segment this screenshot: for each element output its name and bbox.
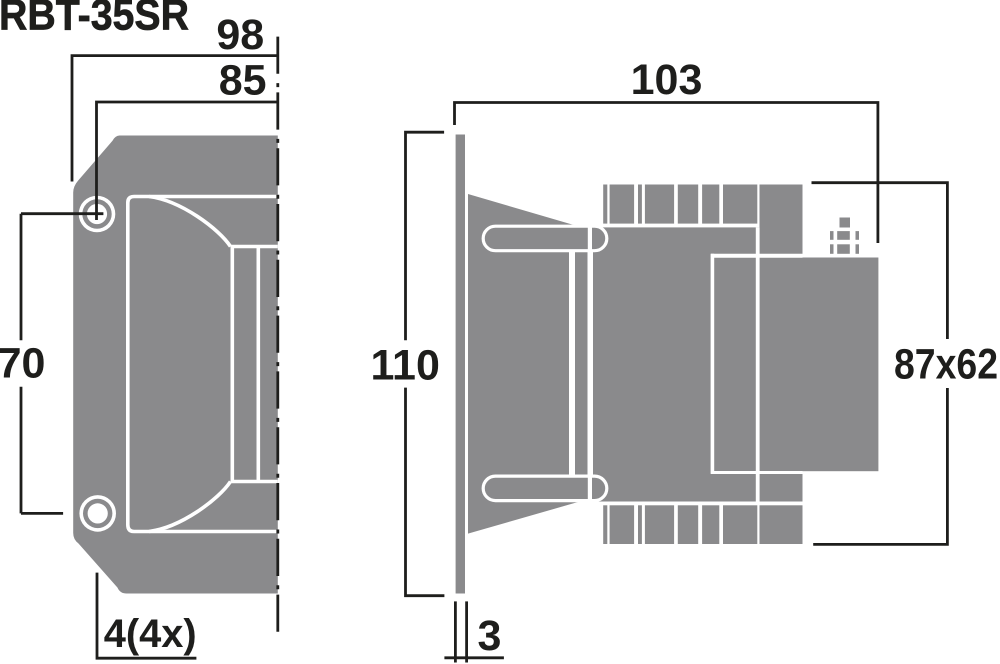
svg-text:103: 103 (631, 56, 703, 104)
svg-text:87x62: 87x62 (894, 341, 998, 389)
svg-text:98: 98 (216, 11, 264, 59)
svg-text:3: 3 (478, 612, 502, 660)
svg-text:110: 110 (371, 342, 440, 390)
svg-text:RBT-35SR: RBT-35SR (0, 0, 189, 40)
svg-text:85: 85 (219, 57, 267, 105)
svg-text:70: 70 (0, 340, 45, 388)
svg-text:4(4x): 4(4x) (104, 612, 197, 656)
